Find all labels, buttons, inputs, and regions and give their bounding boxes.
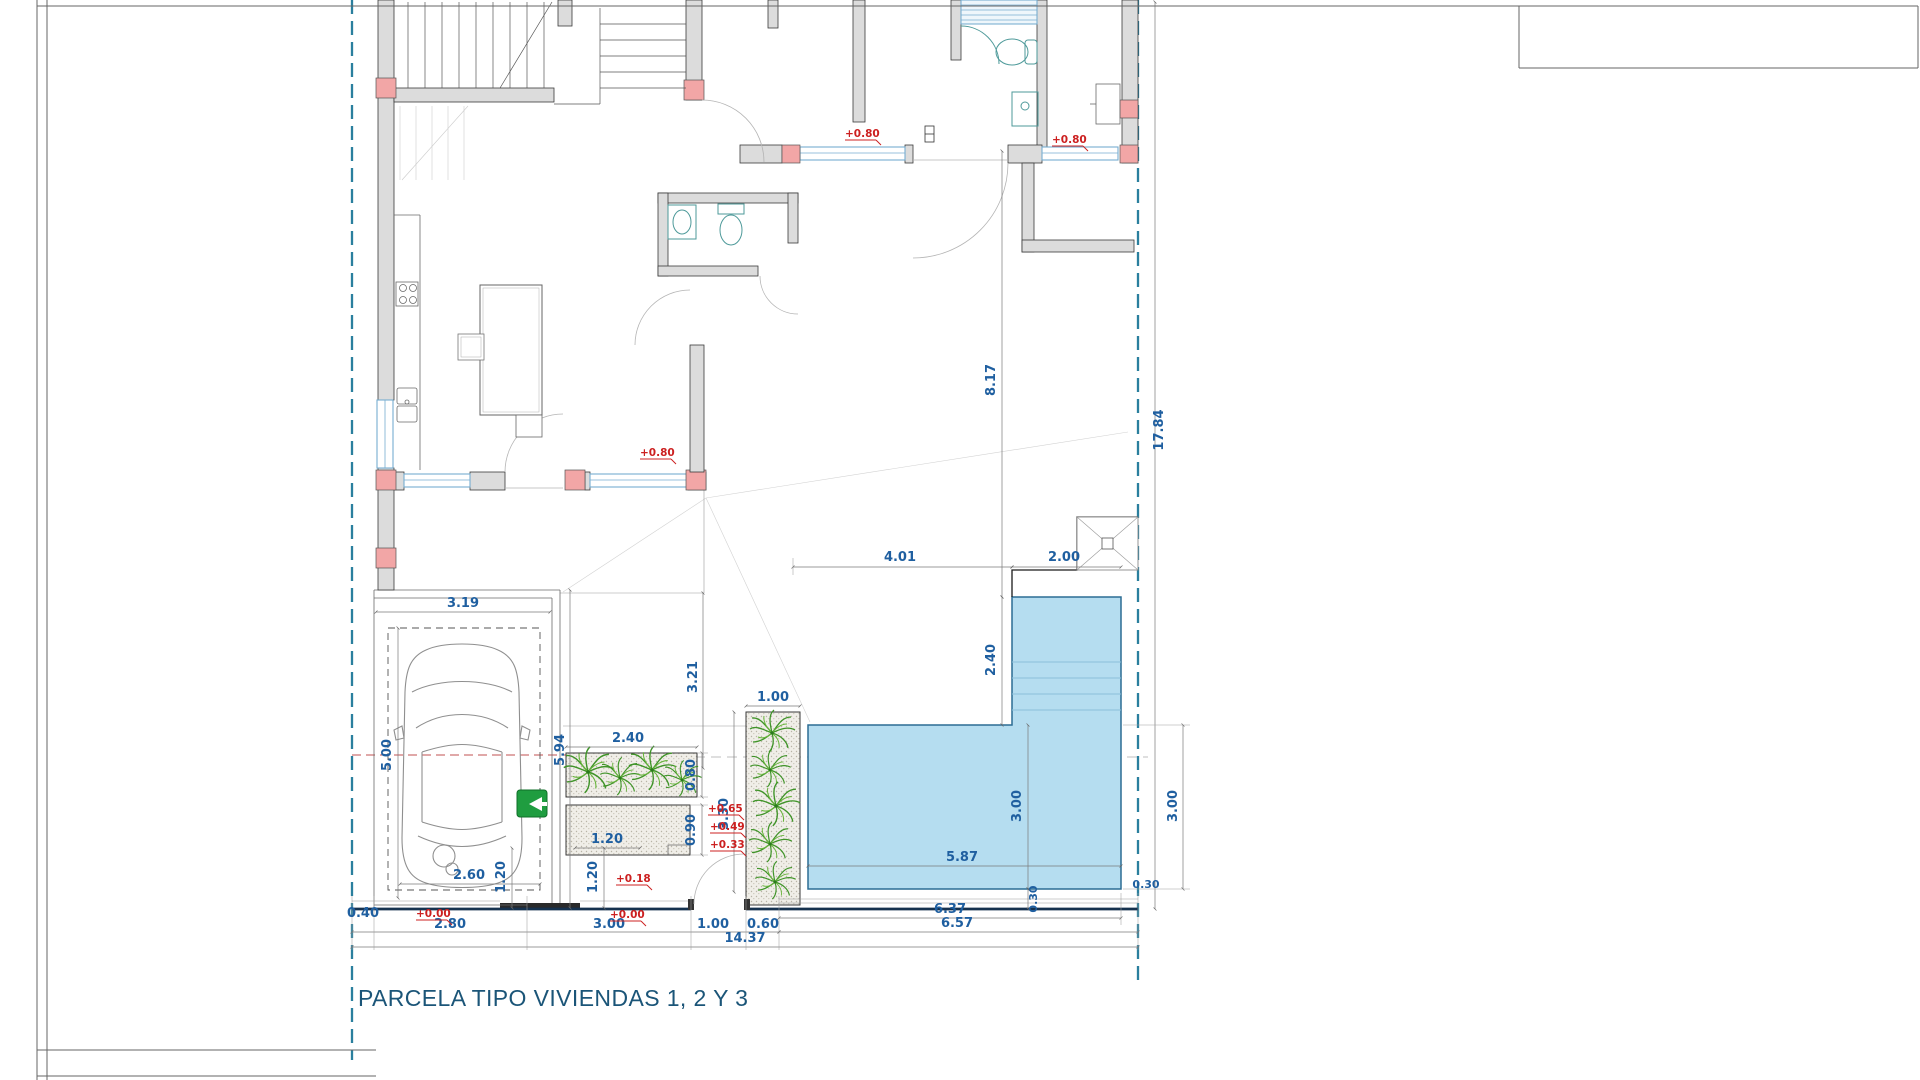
exit-arrow-sign: [517, 790, 547, 817]
kitchen: [394, 215, 704, 472]
dim-path-length: 3.21: [686, 661, 701, 693]
wc-sink: [668, 205, 696, 239]
dim-pool-head-width: 2.00: [1048, 550, 1080, 565]
window: [1042, 147, 1118, 160]
dim-pool-offset-a: 0.30: [1027, 885, 1040, 912]
floor-plan-sheet: 3.19 5.00 5.94 2.60 2.40 0.80 0.90 1.20 …: [0, 0, 1920, 1080]
dim-parcel-length: 17.84: [1152, 409, 1167, 450]
dim-car-width: 2.60: [453, 868, 485, 883]
fridge: [458, 334, 484, 360]
dim-pool-width-outer: 3.00: [1166, 790, 1181, 822]
entry-steps: [566, 805, 690, 855]
svg-text:+0.18: +0.18: [616, 873, 651, 885]
dim-front-total: 14.37: [724, 931, 765, 946]
dim-walkway-b: 1.20: [494, 861, 509, 893]
bath-sink: [1012, 92, 1038, 126]
dim-steps-depth: 0.90: [684, 814, 699, 846]
dim-patio-length: 8.17: [984, 364, 999, 396]
garage: [374, 590, 560, 908]
parking-space: [388, 628, 540, 890]
level-step1: +0.33: [710, 839, 746, 856]
dim-front-637: 6.37: [934, 902, 966, 917]
dim-planter-side-width: 1.00: [757, 690, 789, 705]
dim-front-100: 1.00: [697, 917, 729, 932]
dim-patio-to-pool: 4.01: [884, 550, 916, 565]
kitchen-sink: [397, 388, 417, 422]
level-living: +0.80: [640, 447, 676, 464]
svg-text:+0.65: +0.65: [708, 803, 743, 815]
dim-pool-head-length: 2.40: [984, 644, 999, 676]
window: [404, 474, 470, 487]
svg-text:+0.80: +0.80: [1052, 134, 1087, 146]
shower: [961, 0, 1037, 64]
svg-text:+0.80: +0.80: [640, 447, 675, 459]
dim-planter-front-depth: 0.80: [684, 759, 699, 791]
dim-parking-length: 5.00: [380, 739, 395, 771]
plan-title: PARCELA TIPO VIVIENDAS 1, 2 Y 3: [358, 985, 748, 1011]
svg-text:+0.49: +0.49: [710, 821, 745, 833]
window: [377, 400, 393, 468]
gate-swing: [694, 854, 744, 904]
svg-text:+0.33: +0.33: [710, 839, 745, 851]
gate-post: [744, 899, 750, 910]
window: [590, 474, 688, 487]
level-step2: +0.49: [710, 821, 746, 838]
car: [394, 644, 530, 888]
svg-text:+0.80: +0.80: [845, 128, 880, 140]
dim-walkway-c: 1.20: [586, 861, 601, 893]
toilet: [996, 39, 1037, 65]
dim-garage-depth: 5.94: [553, 734, 568, 766]
kitchen-island: [480, 285, 542, 437]
dim-pool-offset-b: 0.30: [1132, 878, 1159, 891]
closet: [1090, 84, 1120, 124]
stove: [396, 282, 418, 306]
wall-marker: [925, 126, 934, 142]
dim-garage-width: 3.19: [447, 596, 479, 611]
dim-pool-width-inner: 3.00: [1010, 790, 1025, 822]
dim-front-040: 0.40: [347, 906, 379, 921]
level-landing: +0.18: [616, 873, 652, 890]
dim-pool-length: 5.87: [946, 850, 978, 865]
dim-planter-front-width: 2.40: [612, 731, 644, 746]
svg-text:+0.00: +0.00: [416, 908, 451, 920]
window: [800, 147, 905, 160]
dim-front-060: 0.60: [747, 917, 779, 932]
wc-room: [658, 193, 798, 314]
floor-plan-drawing: 3.19 5.00 5.94 2.60 2.40 0.80 0.90 1.20 …: [0, 0, 1920, 1080]
dim-front-657: 6.57: [941, 916, 973, 931]
stairs-under-flight: [400, 106, 468, 180]
pool: [808, 517, 1138, 889]
level-bath: +0.80: [845, 128, 881, 145]
svg-text:+0.00: +0.00: [610, 909, 645, 921]
skimmer-box: [1077, 517, 1138, 570]
dim-walkway-a: 1.20: [591, 832, 623, 847]
wc-toilet: [718, 204, 744, 245]
